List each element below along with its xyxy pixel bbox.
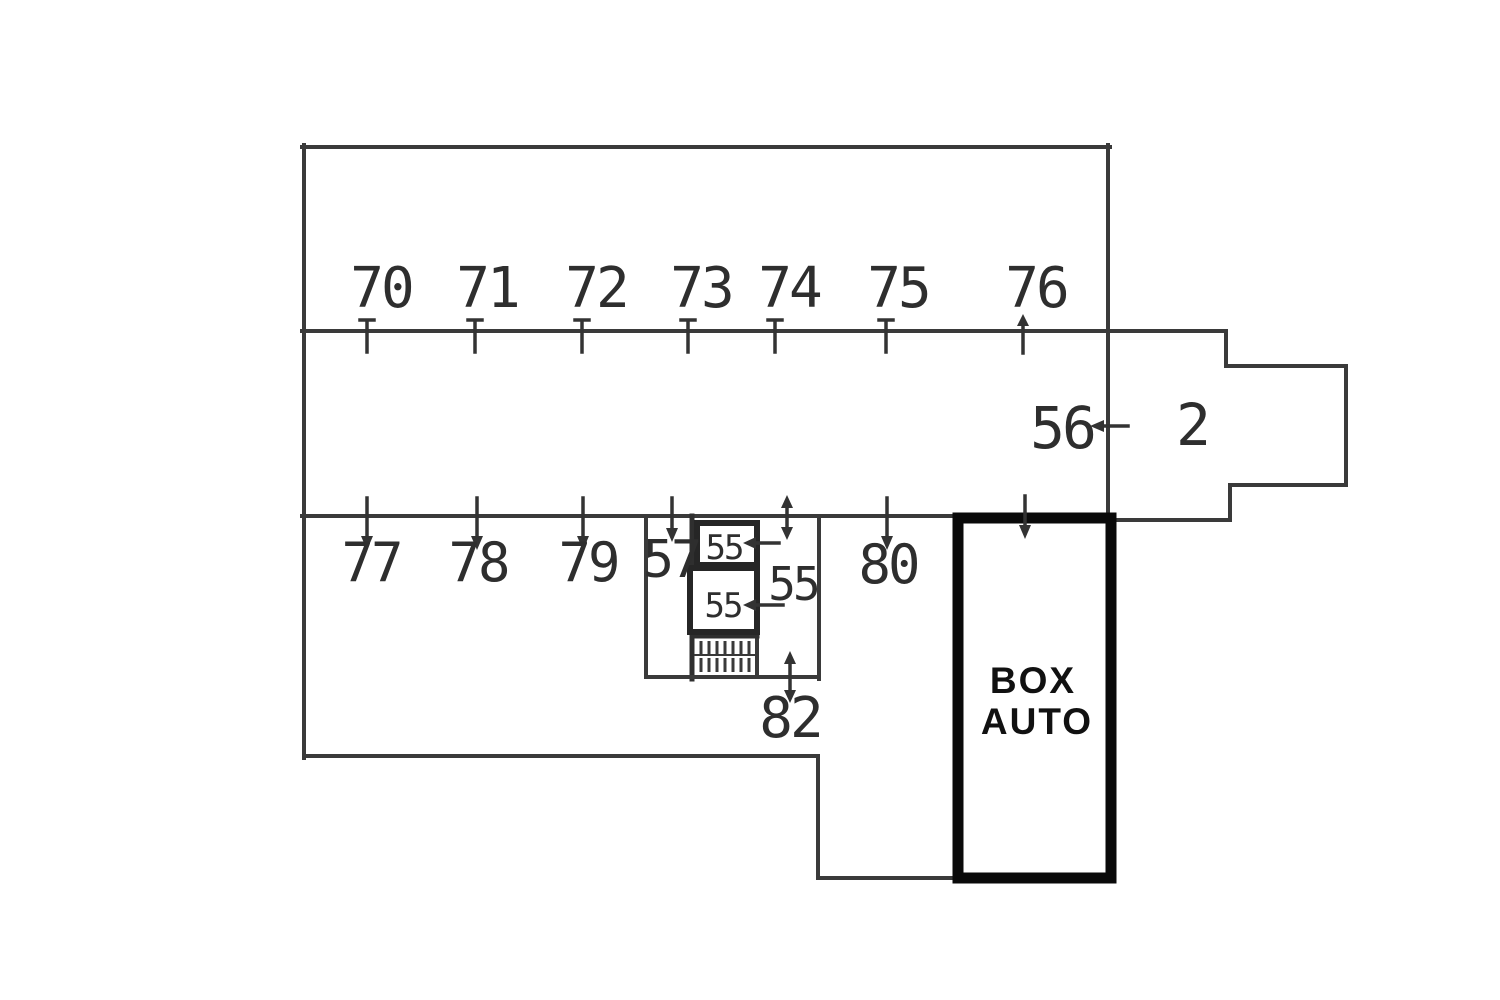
storage-label-55-top: 55 [706,528,743,568]
entry-tick-70 [360,320,374,352]
spot-label-77: 77 [341,531,400,594]
box-auto-label-line1: BOX [990,660,1076,701]
entry-tick-73 [681,320,695,352]
spot-label-76: 76 [1005,256,1067,321]
spot-label-82: 82 [759,686,820,751]
spot-label-71: 71 [456,256,517,321]
floor-plan-canvas: 70 71 72 73 74 75 76 56 2 77 78 79 57 80… [0,0,1500,1000]
spot-label-73: 73 [670,256,731,321]
spot-label-80: 80 [858,533,917,596]
spot-label-78: 78 [448,531,508,594]
stairs-hatching [694,641,757,672]
spot-label-75: 75 [867,256,928,321]
building-outline [302,145,1346,878]
floor-plan-drawing: 70 71 72 73 74 75 76 56 2 77 78 79 57 80… [0,0,1500,1000]
storage-label-55-bottom: 55 [705,586,742,626]
spot-label-74: 74 [758,256,821,321]
box-auto-label-line2: AUTO [981,701,1093,742]
entry-tick-71 [468,320,482,352]
wall-right-annex [1113,331,1346,520]
spot-label-56: 56 [1030,394,1094,462]
spot-label-72: 72 [565,256,626,321]
entry-tick-72 [575,320,589,352]
entry-tick-75 [879,320,893,352]
spot-label-79: 79 [558,531,617,594]
room-label-2: 2 [1176,391,1208,459]
spot-label-57: 57 [643,530,700,590]
spot-label-70: 70 [350,256,412,321]
corridor-label-55: 55 [768,557,818,611]
entry-tick-74 [768,320,782,352]
